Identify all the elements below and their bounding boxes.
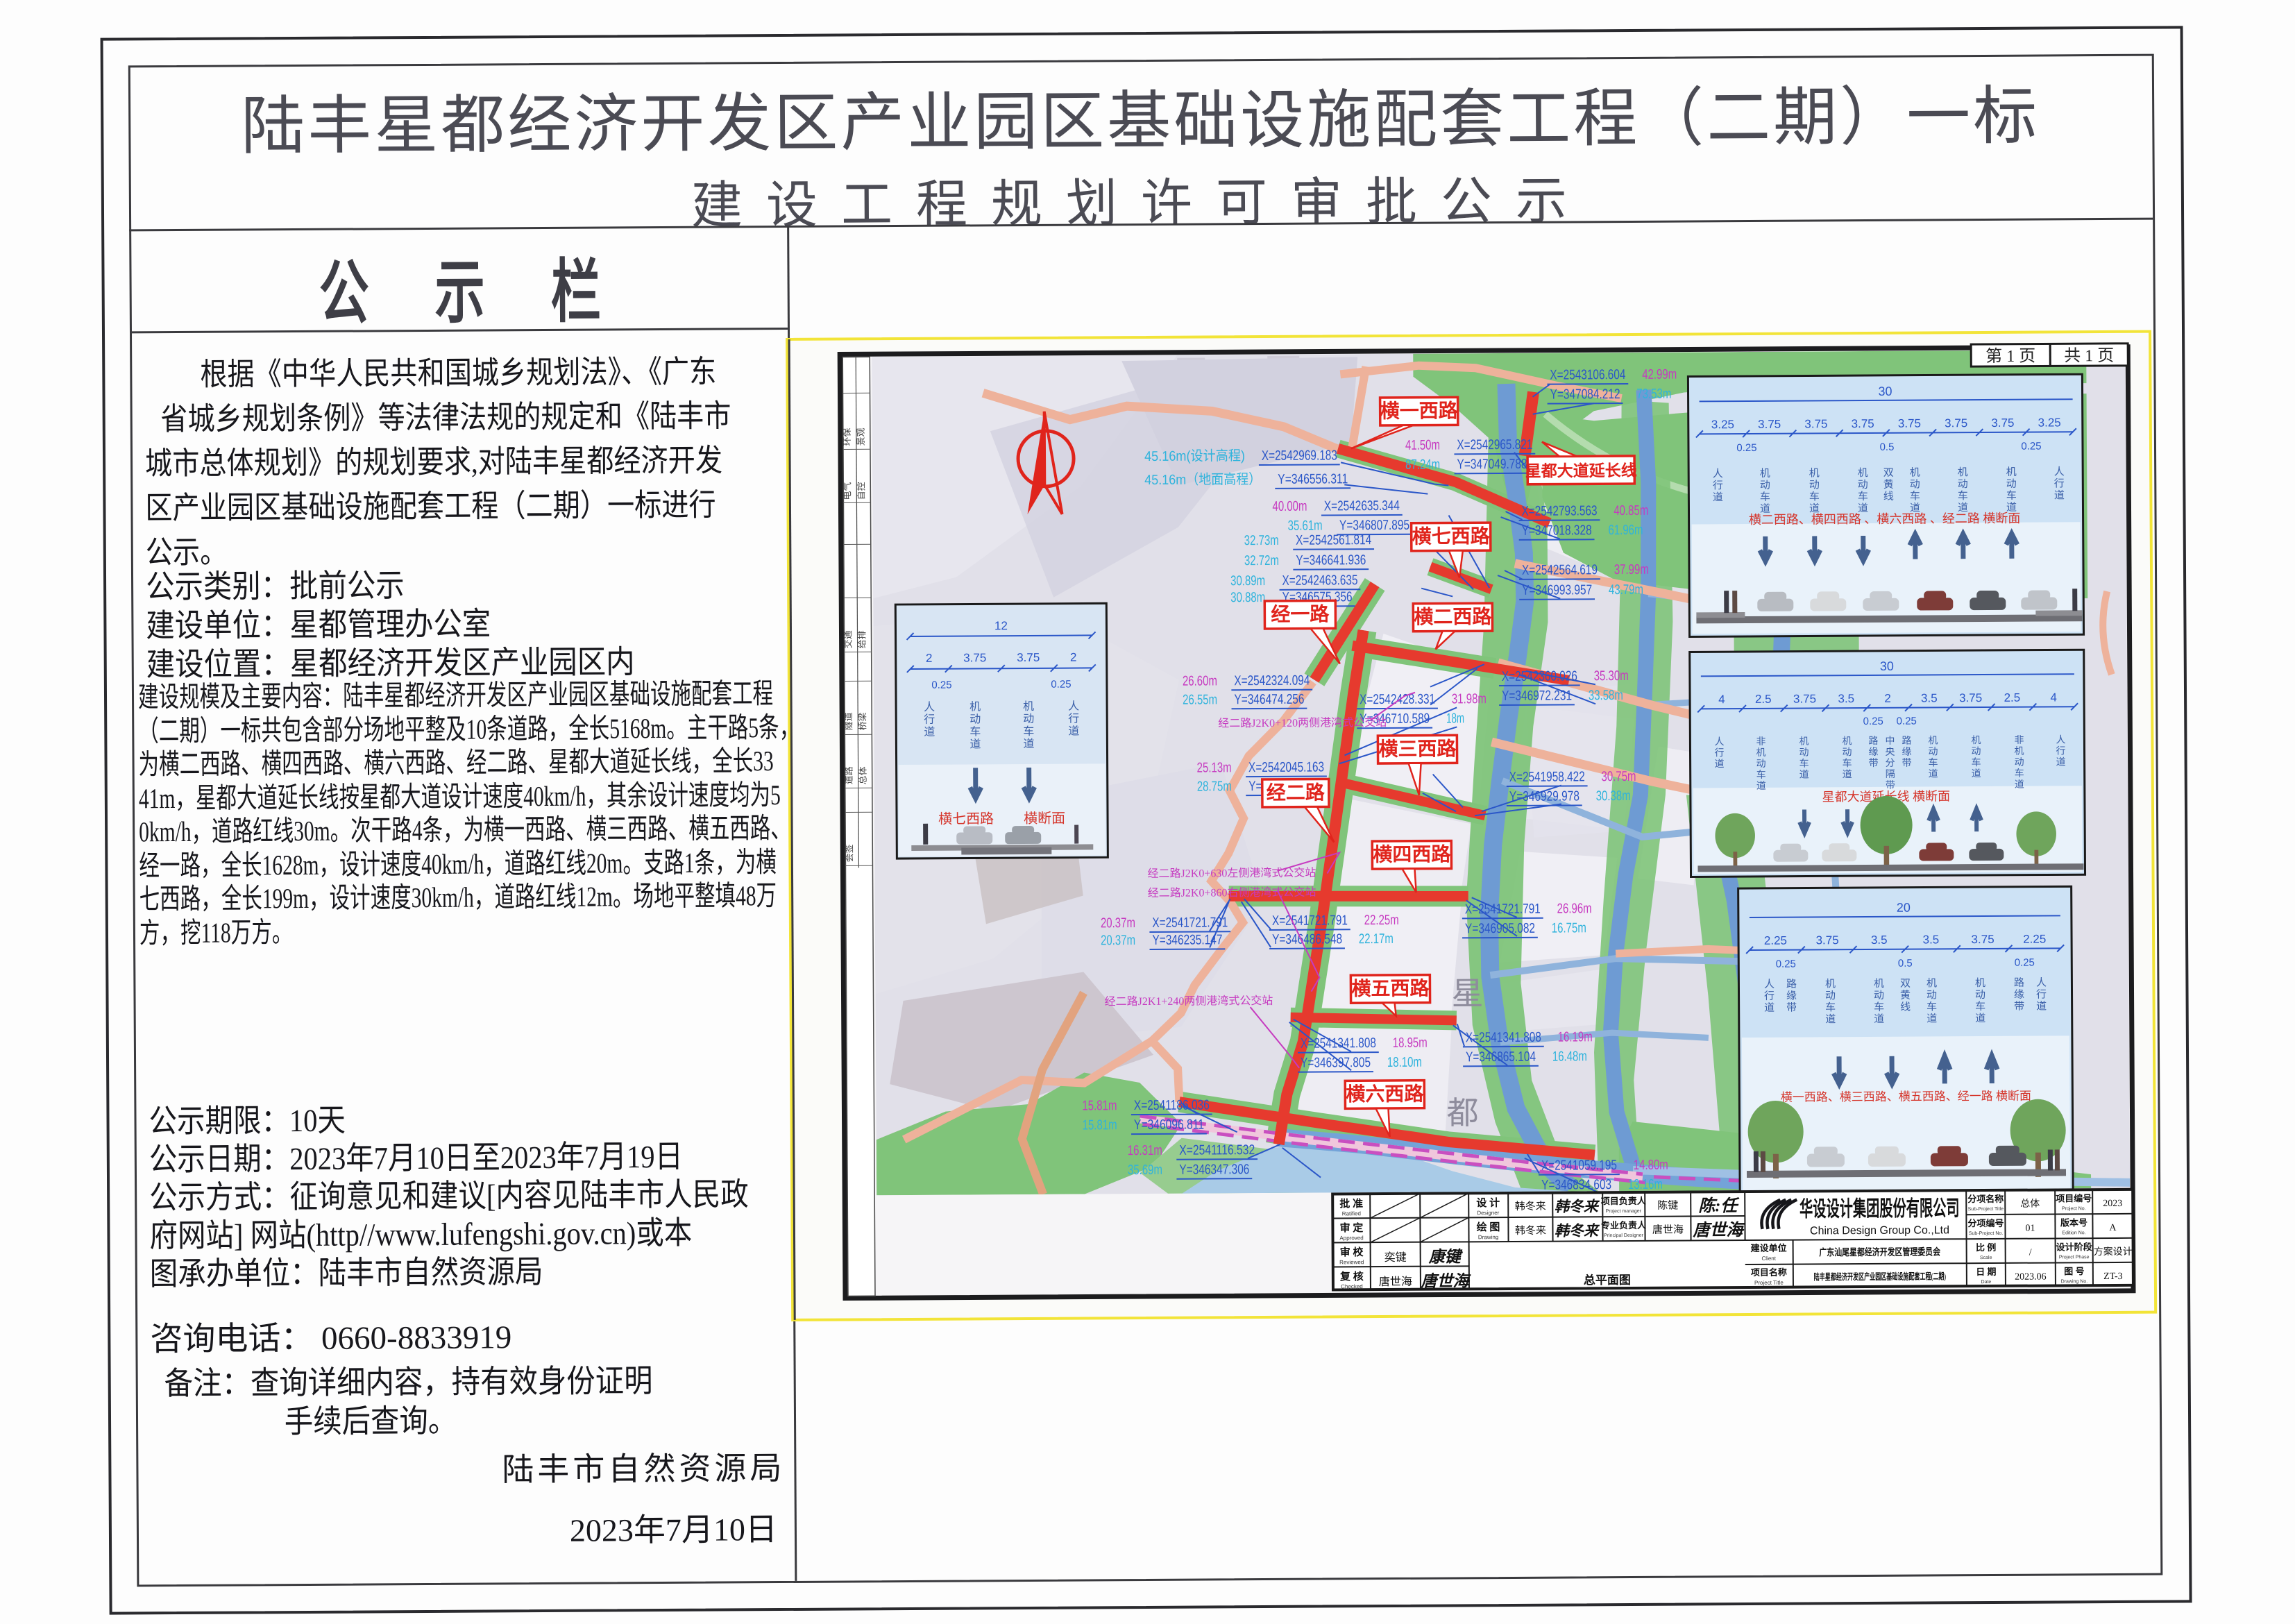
svg-text:3.75: 3.75	[1945, 416, 1967, 430]
svg-text:人行道: 人行道	[1764, 979, 1775, 1014]
svg-text:3.5: 3.5	[1923, 933, 1940, 946]
svg-text:35.69m: 35.69m	[1128, 1162, 1162, 1178]
svg-text:奕键: 奕键	[1384, 1251, 1407, 1264]
svg-text:X=2542965.821: X=2542965.821	[1457, 437, 1532, 453]
svg-text:路缘带: 路缘带	[1786, 979, 1797, 1014]
svg-text:30: 30	[1878, 384, 1892, 398]
svg-text:设 计: 设 计	[1476, 1196, 1500, 1209]
svg-text:韩冬来: 韩冬来	[1555, 1198, 1600, 1215]
svg-text:经二路J2K0+630左侧港湾式公交站: 经二路J2K0+630左侧港湾式公交站	[1147, 867, 1316, 880]
svg-text:Y=346807.895: Y=346807.895	[1339, 518, 1409, 534]
svg-text:Y=346905.082: Y=346905.082	[1465, 921, 1535, 937]
svg-text:图 号: 图 号	[2064, 1266, 2084, 1276]
svg-text:Y=347018.328: Y=347018.328	[1522, 523, 1592, 539]
svg-text:批 准: 批 准	[1339, 1197, 1363, 1210]
svg-text:X=2542635.344: X=2542635.344	[1324, 498, 1400, 514]
svg-text:横二西路、横四西路 、横六西路 、经二路 横断面: 横二西路、横四西路 、横六西路 、经二路 横断面	[1749, 511, 2021, 527]
svg-text:方案设计: 方案设计	[2094, 1246, 2133, 1258]
svg-text:A: A	[2109, 1223, 2117, 1233]
svg-text:横一西路: 横一西路	[1380, 400, 1459, 423]
svg-text:3.75: 3.75	[1017, 651, 1040, 664]
svg-text:87.24m: 87.24m	[1405, 457, 1440, 473]
svg-text:双黄线: 双黄线	[1883, 467, 1894, 502]
svg-text:0.25: 0.25	[2021, 441, 2041, 452]
svg-text:2: 2	[1884, 692, 1891, 705]
svg-text:0.5: 0.5	[1880, 441, 1895, 453]
svg-text:会签: 会签	[844, 844, 854, 862]
svg-text:Project No.: Project No.	[2062, 1206, 2086, 1211]
svg-text:Checked: Checked	[1341, 1283, 1363, 1289]
svg-text:73.53m: 73.53m	[1636, 387, 1671, 402]
svg-text:3.5: 3.5	[1921, 691, 1938, 704]
svg-text:X=2542463.635: X=2542463.635	[1282, 573, 1357, 589]
svg-text:横七西路: 横七西路	[1412, 525, 1491, 548]
svg-text:0.5: 0.5	[1898, 958, 1913, 970]
svg-text:61.96m: 61.96m	[1608, 523, 1643, 538]
svg-text:Project Phase: Project Phase	[2059, 1255, 2090, 1260]
svg-text:Date: Date	[1981, 1280, 1992, 1285]
svg-text:45.16m(设计高程): 45.16m(设计高程)	[1144, 448, 1245, 464]
svg-text:18.95m: 18.95m	[1393, 1035, 1428, 1051]
svg-text:横五西路: 横五西路	[1351, 977, 1430, 1000]
svg-text:20.37m: 20.37m	[1101, 933, 1135, 948]
svg-text:分项名称: 分项名称	[1967, 1194, 2004, 1204]
svg-text:30.75m: 30.75m	[1601, 769, 1636, 784]
svg-text:40.00m: 40.00m	[1272, 499, 1307, 514]
svg-text:经二路J2K0+120两侧港湾式公交站: 经二路J2K0+120两侧港湾式公交站	[1218, 716, 1387, 729]
svg-text:X=2542969.183: X=2542969.183	[1262, 448, 1337, 464]
svg-text:3.75: 3.75	[1793, 692, 1816, 705]
svg-text:横四西路: 横四西路	[1373, 843, 1451, 866]
svg-text:Sub-Project No.: Sub-Project No.	[1969, 1231, 2004, 1236]
svg-text:Project Title: Project Title	[1754, 1280, 1784, 1286]
svg-text:Y=346486.548: Y=346486.548	[1272, 931, 1342, 947]
svg-text:2.25: 2.25	[2023, 933, 2046, 946]
svg-text:人行道: 人行道	[2054, 466, 2065, 501]
svg-text:人行道: 人行道	[2056, 734, 2065, 768]
svg-text:35.30m: 35.30m	[1594, 668, 1629, 684]
svg-text:景观: 景观	[856, 428, 866, 446]
svg-text:分项编号: 分项编号	[1967, 1218, 2004, 1228]
svg-text:0.25: 0.25	[1736, 442, 1756, 454]
svg-text:自控: 自控	[856, 482, 866, 500]
svg-text:2023: 2023	[2103, 1199, 2122, 1209]
svg-text:交通: 交通	[842, 630, 853, 648]
svg-text:经二路J2K0+860右侧港湾式公交站: 经二路J2K0+860右侧港湾式公交站	[1148, 886, 1316, 899]
svg-text:3.75: 3.75	[1804, 417, 1827, 430]
svg-text:3.5: 3.5	[1838, 692, 1854, 705]
svg-text:3.75: 3.75	[1971, 933, 1994, 946]
svg-text:0.25: 0.25	[1776, 958, 1796, 970]
svg-text:3.75: 3.75	[1758, 418, 1781, 431]
svg-text:4: 4	[1718, 693, 1725, 706]
svg-text:人行道: 人行道	[924, 701, 935, 738]
svg-text:项目编号: 项目编号	[2056, 1193, 2092, 1203]
svg-text:26.55m: 26.55m	[1183, 692, 1217, 707]
svg-text:Designer: Designer	[1477, 1210, 1499, 1216]
svg-text:唐世海: 唐世海	[1652, 1224, 1684, 1236]
svg-text:/: /	[2029, 1248, 2032, 1258]
svg-text:26.96m: 26.96m	[1557, 901, 1592, 916]
svg-text:16.19m: 16.19m	[1558, 1029, 1593, 1044]
svg-text:3.5: 3.5	[1871, 933, 1888, 947]
svg-text:15.81m: 15.81m	[1082, 1098, 1117, 1113]
svg-text:01: 01	[2025, 1224, 2035, 1234]
svg-text:30.38m: 30.38m	[1596, 788, 1631, 804]
svg-text:X=2542045.163: X=2542045.163	[1248, 760, 1324, 776]
svg-text:中央分隔带: 中央分隔带	[1885, 736, 1895, 791]
svg-text:3.75: 3.75	[1991, 416, 2014, 430]
svg-text:X=2542793.563: X=2542793.563	[1521, 503, 1597, 519]
svg-text:12: 12	[994, 619, 1008, 632]
svg-text:广东汕尾星都经济开发区管理委员会: 广东汕尾星都经济开发区管理委员会	[1819, 1246, 1940, 1258]
svg-text:桥梁: 桥梁	[857, 712, 867, 730]
svg-text:韩冬来: 韩冬来	[1515, 1201, 1546, 1212]
svg-text:40.85m: 40.85m	[1614, 503, 1648, 518]
svg-text:3.75: 3.75	[1898, 417, 1921, 430]
svg-text:Y=347049.788: Y=347049.788	[1457, 457, 1527, 473]
svg-text:41.50m: 41.50m	[1405, 438, 1440, 453]
svg-text:星: 星	[1451, 976, 1483, 1011]
svg-text:Edition No.: Edition No.	[2062, 1230, 2085, 1235]
svg-text:专业负责人: 专业负责人	[1601, 1220, 1647, 1230]
svg-text:X=2542324.094: X=2542324.094	[1234, 673, 1310, 689]
svg-text:45.16m（地面高程）: 45.16m（地面高程）	[1144, 471, 1261, 488]
svg-text:Y=346834.603: Y=346834.603	[1541, 1177, 1611, 1193]
svg-text:横断面: 横断面	[1024, 811, 1065, 827]
svg-text:30.89m: 30.89m	[1230, 573, 1265, 589]
svg-text:项目负责人: 项目负责人	[1601, 1196, 1647, 1206]
svg-text:比 例: 比 例	[1976, 1242, 1996, 1253]
svg-text:经一路: 经一路	[1271, 602, 1330, 625]
svg-text:人行道: 人行道	[2036, 977, 2047, 1013]
svg-text:X=2541958.422: X=2541958.422	[1509, 769, 1585, 785]
svg-text:28.75m: 28.75m	[1197, 779, 1232, 794]
svg-text:Approved: Approved	[1339, 1235, 1363, 1241]
svg-text:总体: 总体	[858, 766, 868, 784]
svg-text:X=2541721.791: X=2541721.791	[1272, 913, 1348, 929]
svg-text:20.37m: 20.37m	[1101, 915, 1135, 931]
svg-text:韩冬来: 韩冬来	[1515, 1225, 1546, 1237]
svg-text:人行道: 人行道	[1714, 736, 1724, 770]
svg-text:非机动车道: 非机动车道	[1756, 736, 1765, 792]
svg-text:22.25m: 22.25m	[1364, 913, 1399, 928]
svg-text:Project manager: Project manager	[1606, 1209, 1642, 1214]
svg-text:22.17m: 22.17m	[1359, 931, 1394, 947]
svg-text:Y=346556.311: Y=346556.311	[1278, 471, 1348, 487]
svg-text:陆丰星都经济开发区产业园区基础设施配套工程(二期): 陆丰星都经济开发区产业园区基础设施配套工程(二期)	[1814, 1270, 1947, 1283]
svg-text:3.75: 3.75	[963, 651, 986, 664]
svg-text:2: 2	[1070, 651, 1077, 664]
svg-text:X=2543106.604: X=2543106.604	[1550, 367, 1625, 383]
svg-text:18m: 18m	[1446, 711, 1464, 726]
svg-text:唐世海: 唐世海	[1420, 1271, 1471, 1289]
svg-text:20: 20	[1897, 901, 1911, 915]
svg-text:Y=346641.936: Y=346641.936	[1296, 552, 1366, 568]
svg-text:2.25: 2.25	[1764, 934, 1787, 947]
svg-text:双黄线: 双黄线	[1900, 978, 1911, 1013]
svg-text:给排: 给排	[856, 630, 867, 648]
svg-text:Y=347084.212: Y=347084.212	[1550, 387, 1620, 403]
svg-text:Client: Client	[1761, 1255, 1776, 1262]
svg-text:X=2541721.791: X=2541721.791	[1152, 915, 1228, 931]
svg-text:星都大道延长线: 星都大道延长线	[1525, 462, 1637, 480]
svg-text:机动车道: 机动车道	[1023, 700, 1034, 750]
svg-text:X=2541341.808: X=2541341.808	[1301, 1035, 1376, 1051]
svg-text:ZT-3: ZT-3	[2103, 1271, 2123, 1282]
svg-text:绘 图: 绘 图	[1477, 1221, 1500, 1233]
svg-text:2.5: 2.5	[2004, 691, 2021, 704]
svg-text:总平面图: 总平面图	[1584, 1273, 1631, 1287]
svg-text:X=2541186.036: X=2541186.036	[1134, 1097, 1210, 1113]
svg-text:2023.06: 2023.06	[2015, 1272, 2047, 1283]
svg-text:横七西路: 横七西路	[938, 811, 994, 827]
svg-text:3.25: 3.25	[1711, 418, 1734, 431]
svg-text:经二路: 经二路	[1267, 781, 1326, 804]
svg-text:16.31m: 16.31m	[1128, 1143, 1162, 1158]
svg-text:Y=346347.306: Y=346347.306	[1179, 1162, 1249, 1178]
svg-text:设计阶段: 设计阶段	[2056, 1242, 2092, 1252]
svg-text:2.5: 2.5	[1755, 693, 1772, 706]
svg-text:4: 4	[2050, 691, 2057, 704]
svg-text:35.61m: 35.61m	[1288, 518, 1323, 534]
svg-text:项目名称: 项目名称	[1751, 1267, 1787, 1278]
svg-text:道路: 道路	[844, 766, 854, 784]
svg-text:陈:任: 陈:任	[1698, 1196, 1740, 1215]
svg-text:31.98m: 31.98m	[1452, 691, 1487, 707]
svg-text:Scale: Scale	[1980, 1255, 1992, 1260]
svg-text:32.72m: 32.72m	[1244, 553, 1279, 568]
svg-text:Principal Designer: Principal Designer	[1604, 1233, 1644, 1238]
svg-text:非机动车道: 非机动车道	[2014, 735, 2024, 790]
svg-text:16.75m: 16.75m	[1552, 920, 1586, 936]
svg-text:30.88m: 30.88m	[1230, 590, 1265, 605]
svg-text:X=2542561.814: X=2542561.814	[1296, 532, 1371, 548]
svg-text:15.81m: 15.81m	[1083, 1117, 1117, 1133]
svg-text:电气: 电气	[842, 482, 852, 500]
svg-text:0.25: 0.25	[1897, 716, 1917, 727]
svg-text:3.75: 3.75	[1852, 417, 1874, 430]
svg-text:32.73m: 32.73m	[1244, 533, 1279, 548]
svg-text:Y=346096.811: Y=346096.811	[1134, 1117, 1204, 1133]
svg-text:经二路J2K1+240两侧港湾式公交站: 经二路J2K1+240两侧港湾式公交站	[1105, 995, 1273, 1008]
svg-text:Reviewed: Reviewed	[1339, 1259, 1364, 1265]
svg-text:18.10m: 18.10m	[1387, 1055, 1422, 1070]
svg-text:审 校: 审 校	[1340, 1246, 1364, 1258]
svg-text:14.80m: 14.80m	[1634, 1158, 1668, 1173]
svg-text:唐世海: 唐世海	[1379, 1276, 1412, 1288]
svg-text:横六西路: 横六西路	[1346, 1083, 1424, 1106]
svg-text:路缘带: 路缘带	[2014, 977, 2024, 1013]
svg-text:0.25: 0.25	[1863, 716, 1883, 727]
svg-text:X=2541116.532: X=2541116.532	[1179, 1142, 1255, 1158]
svg-text:版本号: 版本号	[2060, 1217, 2087, 1228]
svg-text:X=2541721.791: X=2541721.791	[1465, 902, 1541, 917]
svg-text:0.25: 0.25	[1051, 679, 1071, 691]
svg-text:横三西路: 横三西路	[1378, 738, 1457, 761]
svg-text:30: 30	[1880, 659, 1894, 673]
svg-text:Y=346993.957: Y=346993.957	[1522, 582, 1592, 598]
svg-text:13.16m: 13.16m	[1628, 1177, 1663, 1192]
svg-text:华设设计集团股份有限公司: 华设设计集团股份有限公司	[1799, 1195, 1960, 1221]
svg-text:都: 都	[1446, 1095, 1478, 1131]
svg-text:Ratified: Ratified	[1342, 1210, 1361, 1217]
svg-text:康键: 康键	[1428, 1247, 1464, 1265]
svg-text:总体: 总体	[2020, 1199, 2040, 1210]
svg-text:3.75: 3.75	[1959, 691, 1982, 704]
svg-text:3.25: 3.25	[2038, 416, 2061, 429]
svg-text:Y=346474.256: Y=346474.256	[1234, 692, 1304, 708]
svg-text:16.48m: 16.48m	[1552, 1049, 1587, 1064]
svg-text:26.60m: 26.60m	[1183, 673, 1217, 688]
svg-text:人行道: 人行道	[1713, 468, 1723, 503]
svg-text:韩冬来: 韩冬来	[1555, 1222, 1600, 1239]
svg-text:审 定: 审 定	[1340, 1221, 1364, 1234]
svg-text:横一西路、横三西路、横五西路、经一路 横断面: 横一西路、横三西路、横五西路、经一路 横断面	[1781, 1090, 2031, 1104]
svg-text:建设单位: 建设单位	[1751, 1243, 1787, 1253]
svg-text:0.25: 0.25	[931, 679, 951, 691]
svg-text:3.75: 3.75	[1815, 933, 1838, 947]
svg-text:路缘带: 路缘带	[1868, 736, 1878, 769]
svg-text:Y=346865.104: Y=346865.104	[1466, 1049, 1536, 1065]
svg-text:路缘带: 路缘带	[1902, 736, 1911, 769]
svg-text:陈键: 陈键	[1657, 1199, 1678, 1212]
svg-text:环保: 环保	[842, 428, 852, 446]
svg-text:Sub-Project Title: Sub-Project Title	[1968, 1207, 2004, 1212]
svg-text:复 核: 复 核	[1339, 1270, 1364, 1283]
svg-text:37.99m: 37.99m	[1614, 562, 1649, 577]
svg-text:共 1 页: 共 1 页	[2064, 346, 2114, 365]
svg-text:China Design Group Co.,Ltd: China Design Group Co.,Ltd	[1810, 1224, 1949, 1237]
svg-text:日 期: 日 期	[1976, 1267, 1996, 1277]
svg-text:横二西路: 横二西路	[1414, 606, 1492, 629]
svg-text:X=2542428.331: X=2542428.331	[1360, 692, 1435, 708]
svg-text:Drawing No.: Drawing No.	[2061, 1279, 2088, 1284]
svg-text:Y=346235.147: Y=346235.147	[1152, 932, 1222, 948]
svg-text:25.13m: 25.13m	[1197, 760, 1232, 775]
svg-text:0.25: 0.25	[2015, 957, 2035, 969]
svg-text:2: 2	[926, 652, 933, 665]
svg-text:X=2542564.619: X=2542564.619	[1522, 562, 1598, 578]
svg-text:42.99m: 42.99m	[1642, 367, 1677, 382]
svg-text:33.58m: 33.58m	[1589, 688, 1623, 703]
svg-text:43.79m: 43.79m	[1609, 582, 1643, 598]
svg-text:Drawing: Drawing	[1478, 1234, 1498, 1240]
svg-text:第 1 页: 第 1 页	[1985, 347, 2035, 366]
svg-text:隧道: 隧道	[843, 712, 854, 730]
svg-text:人行道: 人行道	[1068, 700, 1079, 738]
svg-text:唐世海: 唐世海	[1692, 1221, 1745, 1240]
